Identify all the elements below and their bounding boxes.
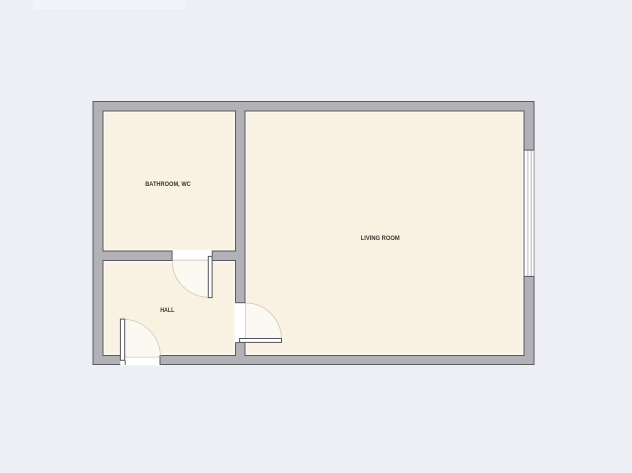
svg-text:HALL: HALL <box>160 307 174 314</box>
svg-text:LIVING ROOM: LIVING ROOM <box>361 235 400 242</box>
svg-text:BATHROOM, WC: BATHROOM, WC <box>145 181 191 188</box>
